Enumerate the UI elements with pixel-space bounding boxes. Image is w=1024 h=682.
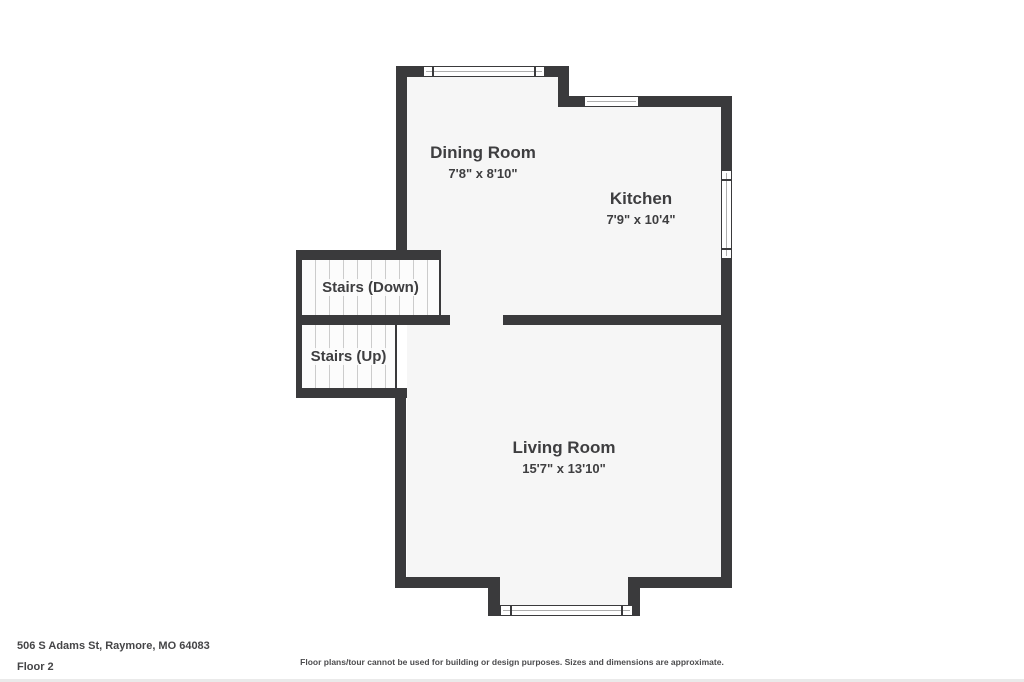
- window-frame-cap: [722, 179, 731, 181]
- window-frame-cap: [432, 67, 434, 76]
- room-label-dining: Dining Room 7'8" x 8'10": [430, 144, 536, 181]
- window-dining-top: [423, 66, 545, 77]
- window-frame-cap: [621, 606, 623, 615]
- room-dimensions: 7'8" x 8'10": [430, 167, 536, 181]
- room-name: Dining Room: [430, 144, 536, 163]
- room-name: Kitchen: [606, 190, 675, 209]
- wall-divider-kitchen-living: [503, 315, 721, 325]
- stairs-up-label: Stairs (Up): [308, 348, 390, 365]
- window-kitchen-top: [584, 96, 639, 107]
- room-dimensions: 15'7" x 13'10": [513, 462, 616, 476]
- floor-area-bay: [500, 577, 628, 606]
- window-frame-cap: [534, 67, 536, 76]
- property-address: 506 S Adams St, Raymore, MO 64083: [17, 640, 210, 652]
- floorplan-canvas: Stairs (Down) Stairs (Up) Dining Room 7'…: [0, 0, 1024, 682]
- room-dimensions: 7'9" x 10'4": [606, 213, 675, 227]
- window-frame-cap: [722, 248, 731, 250]
- wall-left-lower: [395, 388, 406, 588]
- stairs-up-area: Stairs (Up): [300, 323, 397, 390]
- window-frame-cap: [510, 606, 512, 615]
- wall-left-upper: [396, 66, 407, 260]
- window-living-bay: [500, 605, 633, 616]
- disclaimer-text: Floor plans/tour cannot be used for buil…: [0, 657, 1024, 667]
- wall-bottom-right: [628, 577, 732, 588]
- room-name: Living Room: [513, 439, 616, 458]
- stairs-down-label: Stairs (Down): [319, 279, 422, 296]
- room-label-kitchen: Kitchen 7'9" x 10'4": [606, 190, 675, 227]
- wall-bottom-left: [395, 577, 500, 588]
- stairs-down-area: Stairs (Down): [300, 258, 441, 317]
- room-label-living: Living Room 15'7" x 13'10": [513, 439, 616, 476]
- window-kitchen-right: [721, 170, 732, 259]
